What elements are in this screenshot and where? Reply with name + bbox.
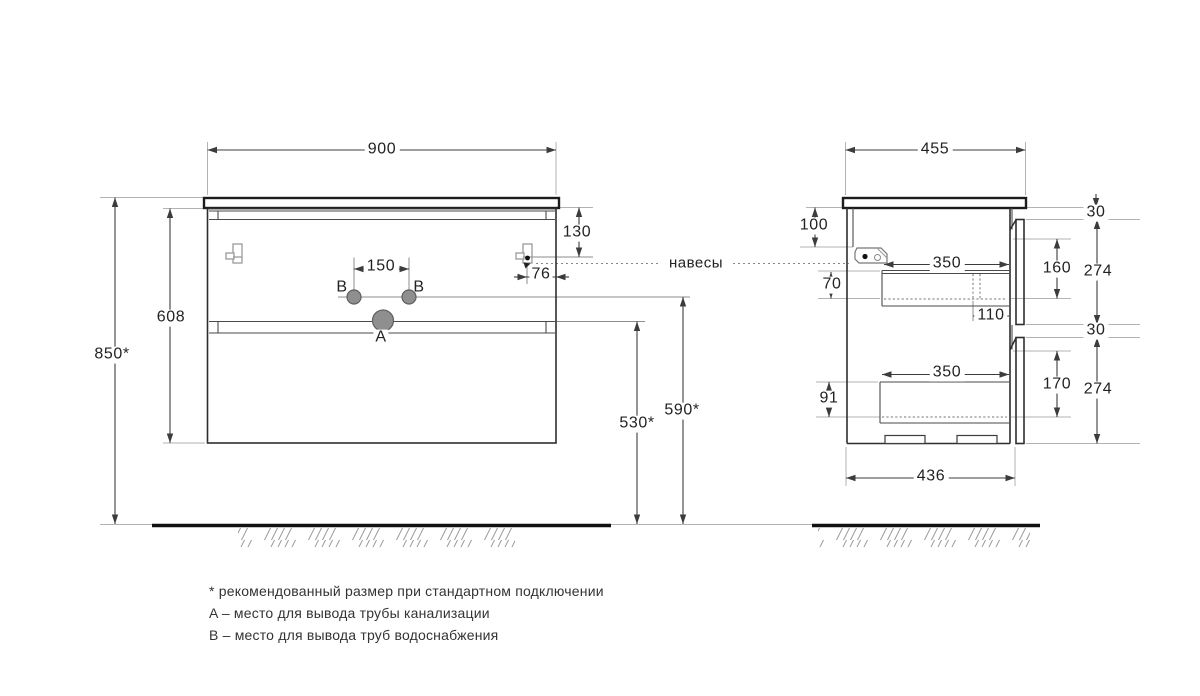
hangers-callout: навесы — [660, 255, 732, 272]
floor-hatching-right — [818, 528, 1030, 547]
side-drawer1-box — [882, 271, 1009, 307]
point-b-right-label: B — [411, 280, 426, 297]
installation-drawing: 900 455 850* 608 130 76 150 530* 590* 10… — [0, 0, 1200, 696]
front-drawer-gap-top — [209, 211, 555, 220]
dim-cabinet-height: 608 — [154, 310, 189, 327]
dim-drawer2-top-inset: 91 — [817, 391, 842, 408]
floor-hatching-left — [238, 528, 515, 547]
dim-drawer1-front-height: 274 — [1081, 264, 1116, 281]
dim-top-gap: 30 — [1084, 205, 1109, 222]
dim-drawer2-inner-height: 170 — [1040, 377, 1075, 394]
point-b-left-label: B — [334, 280, 349, 297]
dim-mid-gap: 30 — [1084, 323, 1109, 340]
side-drawer2-box — [880, 382, 1009, 423]
point-a-label: A — [373, 330, 388, 347]
dim-hanger-side-inset: 76 — [530, 267, 553, 284]
note-point-b: B – место для вывода труб водоснабжения — [209, 627, 498, 643]
side-hanger-plate — [855, 248, 887, 263]
dim-drawer1-top-inset: 70 — [820, 277, 845, 294]
dim-drawer1-inner-height: 160 — [1040, 261, 1075, 278]
dim-hanger-top-offset: 130 — [560, 225, 595, 242]
dim-supply-spacing: 150 — [364, 259, 399, 276]
dim-supply-height: 590* — [661, 403, 702, 420]
hanger-bracket-left-icon — [226, 244, 242, 263]
dim-drawer1-back-gap: 110 — [974, 308, 1007, 325]
side-countertop — [843, 198, 1026, 208]
dim-drawer2-depth: 350 — [930, 365, 965, 382]
side-drawer-fronts — [1010, 208, 1024, 444]
dim-drain-height: 530* — [616, 416, 657, 433]
hanger-bracket-right-icon — [516, 244, 532, 269]
front-view — [204, 198, 559, 443]
side-glide-left — [885, 436, 925, 444]
dim-drawer2-front-height: 274 — [1081, 382, 1116, 399]
front-countertop — [204, 198, 559, 208]
dim-overall-height: 850* — [91, 347, 132, 364]
dim-bottom-depth: 436 — [914, 469, 949, 486]
dim-side-depth: 455 — [918, 142, 953, 159]
side-glide-right — [957, 436, 997, 444]
floor — [152, 526, 1040, 548]
note-point-a: A – место для вывода трубы канализации — [209, 605, 490, 621]
note-recommended-size: * рекомендованный размер при стандартном… — [209, 583, 604, 599]
dim-front-width: 900 — [365, 142, 400, 159]
dim-back-rail-height: 100 — [797, 218, 832, 235]
dim-drawer1-depth: 350 — [930, 256, 965, 273]
